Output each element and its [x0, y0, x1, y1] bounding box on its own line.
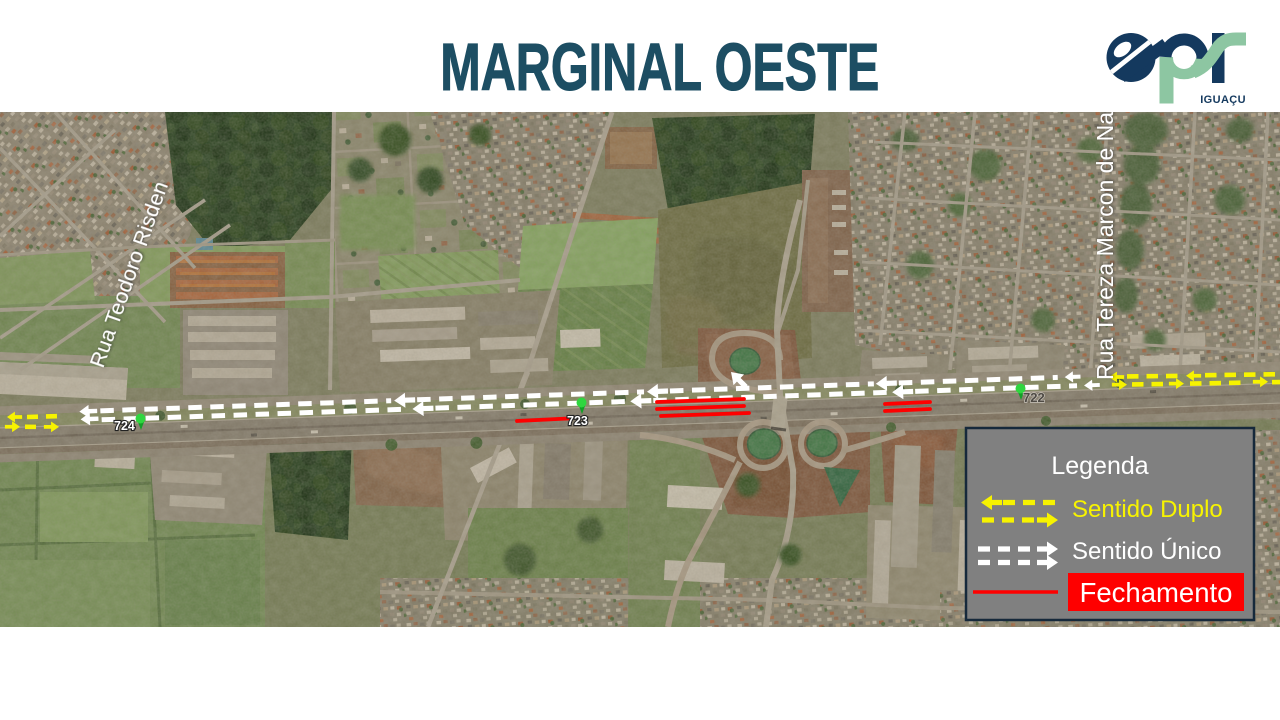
svg-text:723: 723: [567, 414, 588, 428]
svg-text:Fechamento: Fechamento: [1080, 577, 1233, 608]
svg-text:724: 724: [114, 419, 135, 433]
svg-text:Legenda: Legenda: [1051, 452, 1148, 480]
svg-text:Rua Tereza Marcon de Na: Rua Tereza Marcon de Na: [1092, 112, 1118, 380]
svg-text:Sentido Único: Sentido Único: [1072, 538, 1221, 565]
svg-text:Sentido Duplo: Sentido Duplo: [1072, 496, 1223, 523]
svg-text:722: 722: [1023, 390, 1045, 405]
svg-text:IGUAÇU: IGUAÇU: [1200, 94, 1246, 106]
